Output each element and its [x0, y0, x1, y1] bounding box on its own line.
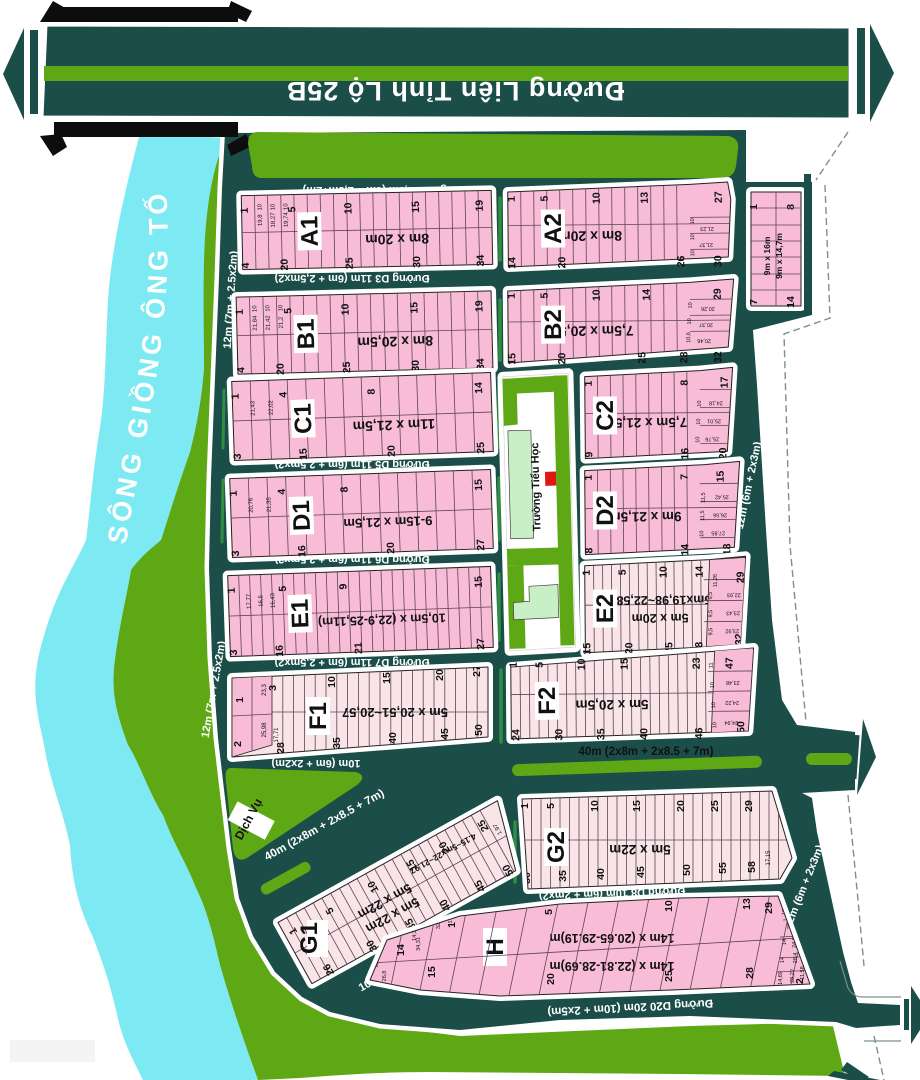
svg-text:1: 1	[508, 662, 520, 668]
svg-text:20: 20	[385, 542, 397, 554]
svg-text:5: 5	[617, 569, 629, 575]
svg-text:26,8: 26,8	[382, 971, 388, 982]
svg-text:B2: B2	[540, 309, 567, 340]
svg-text:32: 32	[436, 923, 442, 929]
svg-text:21,42: 21,42	[266, 315, 272, 331]
svg-text:G2: G2	[543, 831, 570, 863]
svg-text:1: 1	[581, 570, 593, 576]
svg-text:D1: D1	[288, 500, 316, 532]
svg-text:19,74: 19,74	[284, 211, 290, 227]
svg-text:15: 15	[426, 966, 438, 978]
svg-text:10: 10	[270, 203, 276, 210]
svg-text:10: 10	[695, 437, 701, 443]
svg-text:5: 5	[539, 293, 551, 299]
svg-text:10m (6m + 2x2m): 10m (6m + 2x2m)	[271, 757, 360, 769]
svg-text:10: 10	[663, 900, 675, 912]
svg-text:21,84: 21,84	[253, 315, 259, 331]
svg-text:45: 45	[635, 866, 647, 878]
svg-text:50: 50	[473, 724, 485, 736]
svg-text:1: 1	[234, 697, 246, 703]
svg-text:9m x 21,5m: 9m x 21,5m	[609, 509, 682, 525]
svg-text:10: 10	[589, 800, 601, 812]
svg-text:14: 14	[780, 957, 786, 963]
svg-text:21: 21	[353, 642, 365, 654]
svg-text:55: 55	[717, 862, 729, 874]
svg-text:25: 25	[341, 361, 353, 373]
svg-text:8: 8	[365, 388, 377, 394]
svg-text:26,56: 26,56	[713, 511, 727, 517]
svg-text:27,85: 27,85	[711, 529, 725, 535]
svg-text:8m x 20,5m: 8m x 20,5m	[357, 333, 433, 351]
svg-text:9,5: 9,5	[708, 628, 714, 636]
svg-text:10: 10	[690, 234, 696, 240]
svg-text:10: 10	[591, 289, 603, 301]
svg-text:19: 19	[473, 300, 485, 312]
svg-text:22,02: 22,02	[268, 399, 275, 415]
svg-text:9,5: 9,5	[708, 592, 714, 600]
svg-text:20: 20	[556, 352, 568, 364]
svg-text:25,76: 25,76	[705, 435, 719, 441]
svg-text:25: 25	[709, 800, 721, 812]
svg-text:4: 4	[240, 262, 252, 268]
svg-text:16,5: 16,5	[258, 594, 264, 607]
svg-text:10: 10	[326, 676, 338, 688]
svg-text:1: 1	[226, 587, 238, 593]
svg-text:16: 16	[274, 645, 286, 657]
svg-text:14: 14	[506, 257, 518, 269]
svg-text:15: 15	[715, 470, 727, 482]
svg-text:21,37: 21,37	[699, 241, 713, 247]
svg-text:10: 10	[690, 250, 696, 256]
svg-text:20: 20	[386, 445, 398, 457]
svg-text:20: 20	[556, 256, 568, 268]
svg-text:7: 7	[679, 474, 691, 480]
svg-text:1: 1	[506, 293, 518, 299]
svg-text:5m x 20m: 5m x 20m	[632, 611, 689, 625]
svg-text:24,18: 24,18	[709, 399, 723, 405]
svg-text:16,43: 16,43	[270, 592, 277, 608]
svg-text:1: 1	[234, 309, 246, 315]
svg-text:40m (2x8m + 2x8.5 + 7m): 40m (2x8m + 2x8.5 + 7m)	[579, 746, 714, 758]
svg-text:50: 50	[681, 864, 693, 876]
svg-text:23,92: 23,92	[725, 627, 739, 633]
svg-text:10: 10	[712, 722, 718, 728]
svg-text:27: 27	[475, 539, 487, 551]
svg-text:8m x 20m: 8m x 20m	[365, 231, 429, 248]
svg-text:20: 20	[434, 669, 446, 681]
svg-text:5: 5	[539, 196, 551, 202]
svg-text:14: 14	[679, 544, 691, 556]
svg-text:9m x 16m: 9m x 16m	[762, 236, 772, 275]
svg-text:8: 8	[339, 486, 351, 492]
svg-text:Trường Tiểu Học: Trường Tiểu Học	[529, 442, 543, 531]
svg-text:28,22: 28,22	[790, 969, 796, 983]
svg-text:11,5: 11,5	[700, 510, 706, 520]
svg-text:15: 15	[631, 800, 643, 812]
svg-text:15: 15	[381, 672, 393, 684]
svg-text:3: 3	[228, 649, 240, 655]
svg-text:1: 1	[228, 490, 240, 496]
svg-text:14m x (22.81-28.69)m: 14m x (22.81-28.69)m	[549, 959, 674, 973]
svg-text:1: 1	[448, 920, 454, 923]
svg-text:23: 23	[691, 657, 703, 669]
svg-text:3: 3	[230, 550, 242, 556]
svg-text:3: 3	[267, 685, 279, 691]
svg-text:5: 5	[543, 909, 555, 915]
svg-text:1: 1	[583, 475, 595, 481]
svg-text:F1: F1	[305, 702, 332, 730]
svg-text:11m x 21,5m: 11m x 21,5m	[352, 416, 435, 435]
svg-text:5: 5	[545, 803, 557, 809]
svg-text:17: 17	[719, 376, 731, 388]
svg-text:9: 9	[583, 451, 595, 457]
svg-text:10: 10	[658, 566, 670, 578]
svg-text:25: 25	[636, 352, 648, 364]
svg-text:5mx19,98~22,58: 5mx19,98~22,58	[616, 593, 711, 608]
svg-text:14: 14	[694, 566, 706, 578]
svg-text:15: 15	[473, 479, 485, 491]
svg-text:30: 30	[410, 360, 422, 372]
svg-text:10,6: 10,6	[686, 332, 692, 343]
svg-text:4: 4	[276, 488, 288, 494]
svg-text:10: 10	[710, 682, 716, 688]
svg-text:20,46: 20,46	[697, 337, 711, 343]
svg-text:15: 15	[298, 448, 310, 460]
svg-text:9m x 14,7m: 9m x 14,7m	[774, 233, 784, 279]
svg-text:24,94: 24,94	[724, 719, 738, 725]
svg-text:35: 35	[595, 728, 607, 740]
svg-text:30: 30	[553, 729, 565, 741]
svg-text:34: 34	[475, 255, 487, 267]
svg-text:9,5: 9,5	[708, 610, 714, 618]
svg-text:G1: G1	[296, 922, 323, 954]
svg-text:Đường Liên Tỉnh Lộ 25B: Đường Liên Tỉnh Lộ 25B	[286, 76, 624, 106]
svg-text:15: 15	[506, 353, 518, 365]
svg-text:20: 20	[545, 973, 557, 985]
svg-text:15: 15	[619, 658, 631, 670]
svg-text:10: 10	[283, 203, 289, 210]
svg-text:8: 8	[583, 548, 595, 554]
svg-text:40: 40	[387, 732, 399, 744]
svg-text:10: 10	[342, 202, 354, 214]
svg-text:4: 4	[235, 367, 247, 373]
svg-text:35: 35	[557, 870, 569, 882]
svg-text:25: 25	[663, 970, 675, 982]
svg-text:10: 10	[265, 304, 271, 311]
svg-text:E1: E1	[287, 598, 315, 628]
svg-text:23,43: 23,43	[726, 609, 740, 615]
svg-text:25,42: 25,42	[715, 493, 729, 499]
svg-text:10: 10	[696, 419, 702, 425]
svg-text:28: 28	[678, 351, 690, 363]
svg-text:11: 11	[709, 662, 715, 668]
svg-text:H: H	[482, 938, 509, 955]
svg-text:10: 10	[576, 658, 588, 670]
svg-text:25,01: 25,01	[707, 417, 721, 423]
svg-text:8: 8	[785, 204, 797, 210]
svg-text:10: 10	[687, 318, 693, 324]
svg-text:10: 10	[257, 203, 263, 210]
svg-text:32: 32	[712, 351, 724, 363]
svg-text:5m x 20,5m: 5m x 20,5m	[576, 697, 649, 713]
svg-text:21,2: 21,2	[279, 316, 285, 328]
svg-text:46: 46	[693, 727, 705, 739]
svg-text:21,43: 21,43	[250, 400, 257, 416]
svg-text:14: 14	[641, 289, 653, 301]
svg-text:17,77: 17,77	[246, 593, 253, 609]
svg-text:24,22: 24,22	[725, 699, 739, 705]
svg-text:13: 13	[639, 192, 651, 204]
svg-text:40: 40	[595, 868, 607, 880]
svg-text:20,37: 20,37	[699, 321, 713, 327]
svg-text:20: 20	[675, 800, 687, 812]
svg-text:13: 13	[741, 898, 753, 910]
svg-text:17,71: 17,71	[274, 727, 280, 743]
svg-text:8m x 20m: 8m x 20m	[558, 228, 622, 245]
svg-text:20,26: 20,26	[701, 305, 715, 311]
svg-text:29: 29	[712, 288, 724, 300]
svg-text:35: 35	[331, 737, 343, 749]
svg-text:58: 58	[746, 861, 758, 873]
svg-text:11,5: 11,5	[701, 492, 707, 502]
svg-text:A1: A1	[296, 216, 324, 247]
svg-text:10: 10	[697, 401, 703, 407]
svg-text:Đường D3 11m (6m + 2,5mx2): Đường D3 11m (6m + 2,5mx2)	[274, 272, 429, 284]
svg-text:25: 25	[475, 442, 487, 454]
svg-text:E2: E2	[592, 594, 619, 624]
svg-text:17,15: 17,15	[766, 850, 772, 866]
svg-text:5: 5	[534, 662, 546, 668]
svg-text:10: 10	[688, 302, 694, 308]
svg-text:19: 19	[474, 200, 486, 212]
svg-text:45: 45	[439, 728, 451, 740]
svg-text:1: 1	[239, 207, 251, 213]
svg-text:15: 15	[410, 201, 422, 213]
svg-text:1: 1	[748, 204, 760, 210]
svg-text:30: 30	[411, 256, 423, 268]
svg-text:10: 10	[278, 304, 284, 311]
svg-text:10: 10	[711, 702, 717, 708]
svg-text:F2: F2	[534, 687, 561, 715]
svg-text:16: 16	[679, 448, 691, 460]
svg-text:14: 14	[395, 944, 407, 956]
svg-text:29: 29	[763, 902, 775, 914]
svg-text:B1: B1	[292, 318, 320, 349]
svg-text:3: 3	[232, 453, 244, 459]
svg-text:2: 2	[232, 741, 244, 747]
svg-text:30: 30	[712, 255, 724, 267]
svg-text:27: 27	[713, 191, 725, 203]
svg-text:7: 7	[748, 299, 760, 305]
svg-text:20: 20	[623, 642, 635, 654]
svg-text:25,98: 25,98	[262, 722, 268, 738]
svg-text:21,35: 21,35	[266, 496, 273, 512]
svg-text:10: 10	[699, 531, 705, 537]
svg-text:24: 24	[510, 729, 522, 741]
svg-text:25: 25	[344, 257, 356, 269]
svg-text:C2: C2	[592, 400, 619, 431]
svg-text:15: 15	[473, 576, 485, 588]
svg-text:26: 26	[675, 255, 687, 267]
svg-text:15: 15	[581, 643, 593, 655]
svg-text:15: 15	[408, 302, 420, 314]
svg-text:1: 1	[519, 803, 531, 809]
svg-text:11,26: 11,26	[713, 574, 719, 587]
svg-text:4: 4	[277, 391, 289, 397]
svg-text:18,27: 18,27	[271, 212, 277, 228]
svg-text:D2: D2	[592, 495, 619, 526]
svg-text:47: 47	[724, 657, 736, 669]
svg-text:34,31: 34,31	[416, 937, 422, 951]
svg-text:1: 1	[583, 380, 595, 386]
svg-text:20: 20	[275, 363, 287, 375]
svg-text:5: 5	[277, 585, 289, 591]
svg-text:C1: C1	[289, 403, 317, 435]
svg-text:14,69: 14,69	[778, 971, 784, 985]
svg-text:10: 10	[690, 218, 696, 224]
svg-text:14: 14	[782, 939, 788, 945]
svg-text:10: 10	[339, 303, 351, 315]
svg-text:40: 40	[638, 728, 650, 740]
svg-text:9: 9	[337, 583, 349, 589]
svg-text:5m x 22m: 5m x 22m	[609, 842, 671, 857]
svg-text:20: 20	[279, 259, 291, 271]
svg-text:1: 1	[230, 393, 242, 399]
svg-text:23,48: 23,48	[726, 679, 740, 685]
svg-text:14: 14	[473, 382, 485, 394]
svg-text:20,76: 20,76	[248, 497, 255, 513]
svg-text:8: 8	[679, 380, 691, 386]
svg-text:16: 16	[296, 545, 308, 557]
svg-text:10: 10	[591, 192, 603, 204]
svg-text:14: 14	[785, 296, 797, 308]
svg-text:5m x 20,51~20,57: 5m x 20,51~20,57	[342, 705, 448, 720]
svg-text:28,4: 28,4	[793, 953, 799, 964]
svg-text:19,8: 19,8	[258, 214, 264, 226]
svg-text:27: 27	[475, 638, 487, 650]
svg-text:22,93: 22,93	[727, 591, 741, 597]
svg-text:28: 28	[275, 742, 287, 754]
svg-text:21,23: 21,23	[700, 225, 714, 231]
svg-text:28: 28	[744, 967, 756, 979]
svg-text:29: 29	[743, 800, 755, 812]
svg-text:A2: A2	[540, 213, 567, 244]
svg-text:1: 1	[506, 196, 518, 202]
svg-text:9-15m x 21,5m: 9-15m x 21,5m	[343, 513, 432, 531]
svg-text:10: 10	[252, 305, 258, 312]
